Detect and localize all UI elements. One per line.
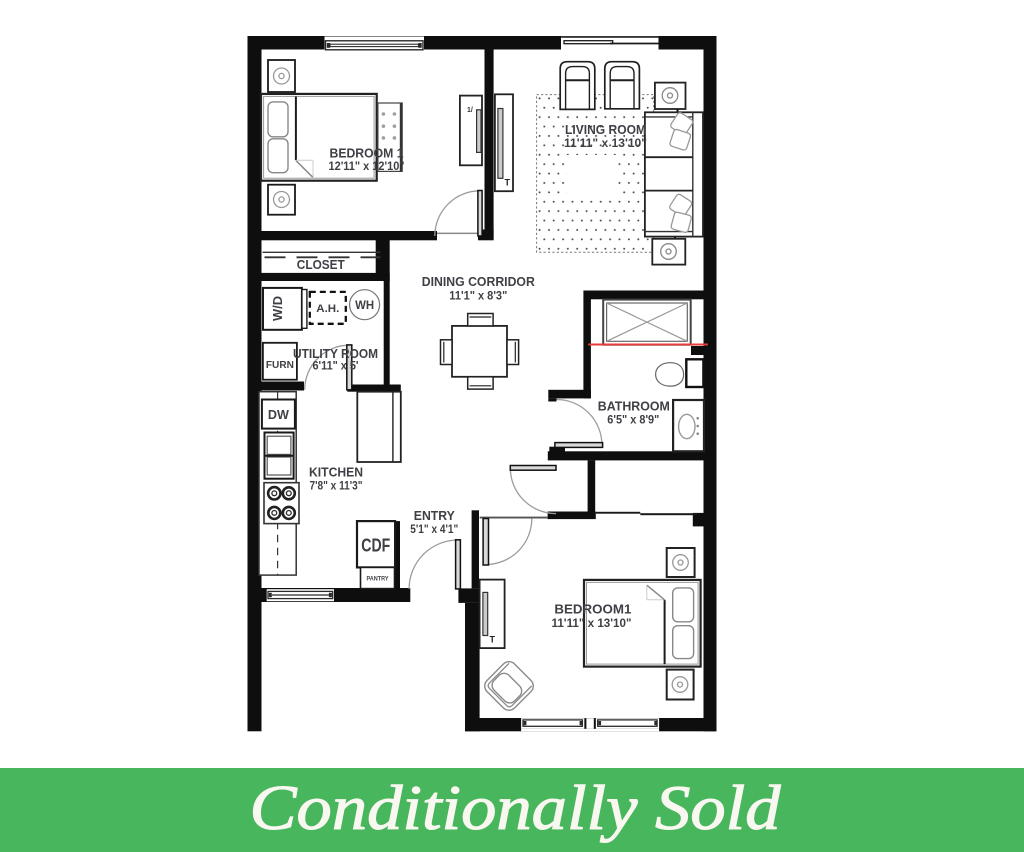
svg-text:12'11" x 12'10": 12'11" x 12'10": [329, 159, 405, 173]
svg-text:T: T: [505, 178, 511, 188]
svg-text:11'1" x 8'3": 11'1" x 8'3": [449, 289, 507, 303]
svg-text:T: T: [490, 635, 496, 645]
svg-text:6'11" x 5': 6'11" x 5': [313, 358, 359, 372]
svg-text:FURN: FURN: [266, 360, 294, 371]
svg-text:A.H.: A.H.: [316, 303, 339, 315]
svg-text:DINING CORRIDOR: DINING CORRIDOR: [422, 274, 536, 289]
svg-text:KITCHEN: KITCHEN: [309, 465, 363, 480]
svg-text:WH: WH: [355, 298, 374, 312]
svg-text:CLOSET: CLOSET: [297, 257, 345, 272]
svg-text:7'8" x 11'3": 7'8" x 11'3": [310, 479, 363, 493]
svg-text:6'5" x 8'9": 6'5" x 8'9": [607, 412, 659, 426]
svg-text:5'1" x 4'1": 5'1" x 4'1": [410, 522, 458, 536]
svg-text:Conditionally Sold: Conditionally Sold: [250, 772, 782, 843]
svg-text:1/: 1/: [467, 107, 473, 114]
svg-text:11'11" x 13'10": 11'11" x 13'10": [564, 136, 647, 150]
svg-text:11'11" x 13'10": 11'11" x 13'10": [552, 616, 632, 630]
svg-text:CDF: CDF: [361, 536, 390, 556]
svg-text:DW: DW: [268, 407, 290, 422]
svg-text:W/D: W/D: [271, 296, 285, 321]
svg-text:ENTRY: ENTRY: [414, 508, 455, 523]
svg-text:PANTRY: PANTRY: [367, 576, 390, 583]
svg-text:BEDROOM1: BEDROOM1: [554, 602, 631, 617]
